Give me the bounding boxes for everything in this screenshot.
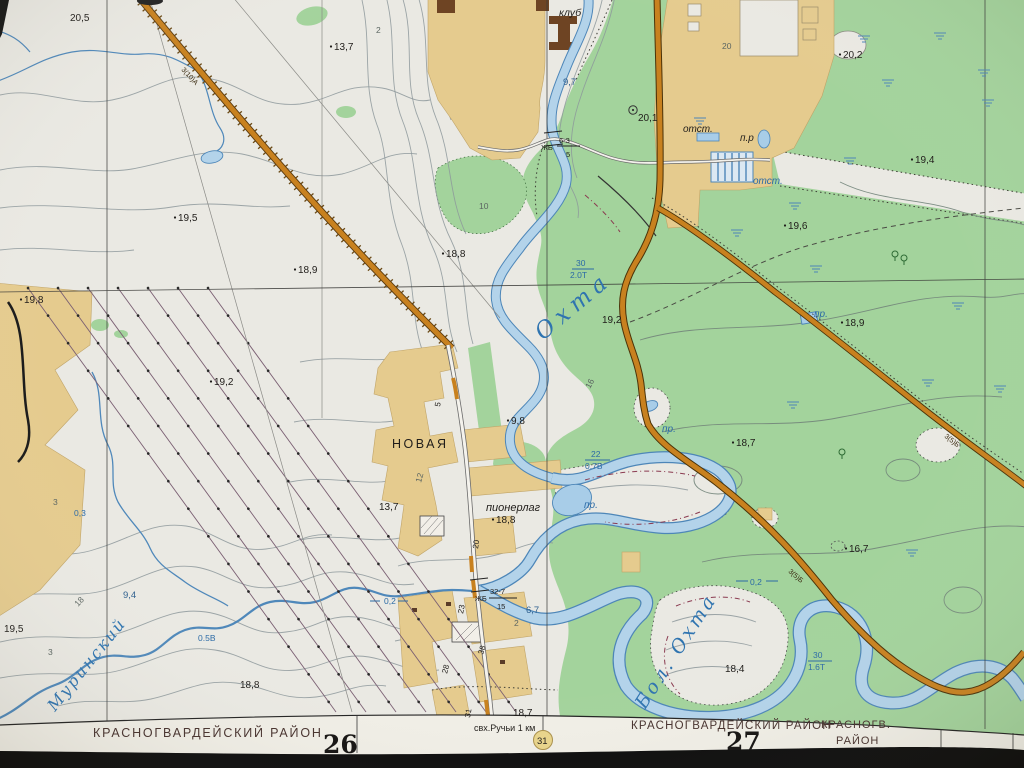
bridge-label: 15: [497, 602, 505, 611]
river-width-label: 30: [813, 650, 823, 660]
bridge-label: 5: [566, 150, 570, 159]
elevation-label: 20,1: [638, 113, 658, 124]
elevation-label: 18,8: [446, 249, 466, 260]
bridge-label: 32-7: [490, 587, 505, 596]
spot-height-dot: [845, 547, 847, 549]
elevation-label: 18,8: [240, 680, 260, 691]
settling-pond-label: отст.: [683, 124, 713, 135]
hatched-building: [420, 516, 444, 536]
map-photo: 20,513,719,518,818,919,819,213,719,518,8…: [0, 0, 1024, 768]
contour-label: 2: [514, 618, 519, 628]
spot-height-dot: [911, 158, 913, 160]
river-width-label: 0,3: [74, 508, 86, 518]
elevation-label: 9,8: [511, 416, 525, 427]
district-name-left: КРАСНОГВАРДЕЙСКИЙ РАЙОН: [93, 725, 323, 740]
settling-pond-label: отст.: [753, 176, 783, 187]
contour-label: 3: [48, 647, 53, 657]
route-marker-number: 31: [537, 736, 548, 747]
contour-label: 20: [722, 41, 732, 51]
spot-height-dot: [784, 224, 786, 226]
spot-height-dot: [507, 419, 509, 421]
elevation-label: 19,2: [602, 315, 622, 326]
pond-label: пр.: [814, 309, 828, 320]
river-depth-label: 0.5В: [198, 633, 216, 643]
river-width-label: 22: [591, 449, 601, 459]
elevation-label: 20,5: [70, 13, 90, 24]
pioneer-camp-label: пионерлаг: [486, 502, 541, 514]
pond-label: пр.: [584, 500, 598, 511]
stream-width-label: 0,2: [750, 577, 762, 587]
contour-label: 2: [376, 25, 381, 35]
spot-height-dot: [294, 268, 296, 270]
sheet-number-26: 26: [323, 730, 358, 759]
contour-label: 10: [479, 201, 489, 211]
settlement-label-novaya: НОВАЯ: [392, 437, 449, 451]
bridge-label: ЖБ: [541, 143, 553, 152]
spot-height-dot: [492, 518, 494, 520]
spot-height-dot: [442, 252, 444, 254]
elevation-label: 19,2: [214, 377, 234, 388]
pond-label: п.р: [740, 133, 754, 144]
river-depth-label: 2.0Т: [570, 270, 587, 280]
pond-label: пр.: [662, 424, 676, 435]
elevation-label: 18,7: [736, 438, 756, 449]
spot-height-dot: [174, 216, 176, 218]
water-elevation-label: 9,7: [563, 77, 576, 88]
hatched-building: [452, 622, 482, 642]
district-name-far-right: РАЙОН: [836, 734, 879, 747]
settling-tanks: [711, 152, 753, 182]
spot-height-dot: [210, 380, 212, 382]
stream-width-label: 0,2: [384, 596, 396, 606]
elevation-label: 13,7: [334, 42, 354, 53]
elevation-label: 19,8: [24, 295, 44, 306]
spot-height-dot: [841, 321, 843, 323]
bridge-label: 6-3: [559, 136, 570, 145]
spot-height-dot: [330, 45, 332, 47]
elevation-label: 19,6: [788, 221, 808, 232]
bridge-label: ЖБ: [475, 594, 487, 603]
street-number: 20: [471, 539, 481, 550]
spot-height-dot: [732, 441, 734, 443]
elevation-label: 19,5: [4, 624, 24, 635]
spot-height-dot: [20, 298, 22, 300]
club-label: клуб: [559, 7, 582, 19]
elevation-label: 18,4: [725, 664, 745, 675]
elevation-label: 20,2: [843, 50, 863, 61]
elevation-label: 6,7: [526, 605, 539, 616]
elevation-label: 13,7: [379, 502, 399, 513]
district-name-far-right: КРАСНОГВ.: [821, 719, 891, 731]
elevation-label: 16,7: [849, 544, 869, 555]
river-depth-label: 0.7В: [585, 461, 603, 471]
spot-height-dot: [839, 53, 841, 55]
elevation-label: 18,9: [298, 265, 318, 276]
elevation-label: 19,4: [915, 155, 935, 166]
map-canvas: 20,513,719,518,818,919,819,213,719,518,8…: [0, 0, 1024, 768]
river-width-label: 30: [576, 258, 586, 268]
sheet-number-27: 27: [726, 727, 761, 756]
elevation-label: 18,8: [496, 515, 516, 526]
route-note: свх.Ручьи 1 км: [474, 723, 535, 733]
elevation-label: 19,5: [178, 213, 198, 224]
contour-label: 3: [53, 497, 58, 507]
elevation-label: 18,9: [845, 318, 865, 329]
elevation-label: 18,7: [513, 708, 533, 719]
river-depth-label: 1.6Т: [808, 662, 825, 672]
water-elevation-label: 9,4: [123, 590, 136, 601]
pond: [758, 130, 770, 148]
